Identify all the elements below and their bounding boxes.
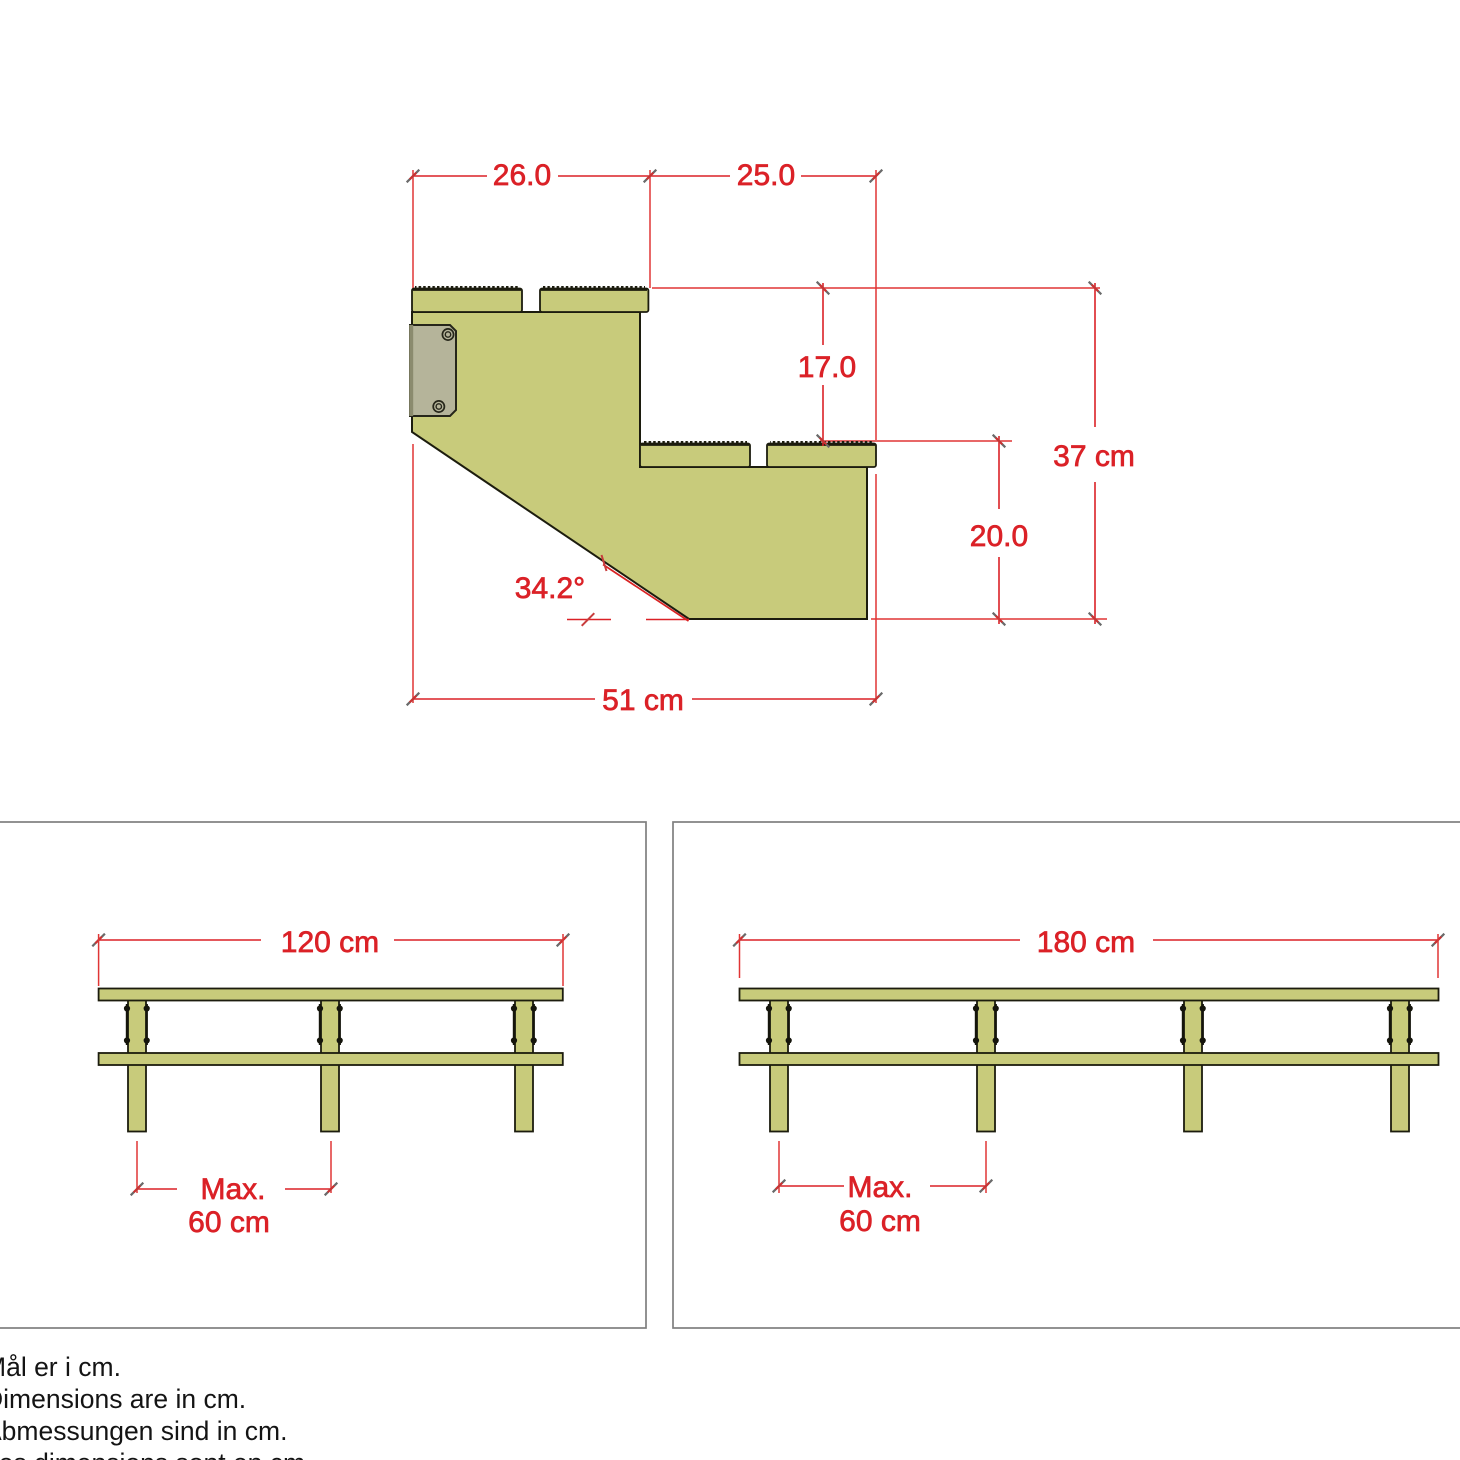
svg-text:120 cm: 120 cm (281, 926, 379, 959)
svg-text:60 cm: 60 cm (188, 1206, 270, 1239)
svg-text:Max.: Max. (847, 1171, 912, 1204)
svg-text:51 cm: 51 cm (602, 684, 684, 717)
svg-text:Les dimensions sont en cm.: Les dimensions sont en cm. (0, 1448, 312, 1460)
svg-text:34.2°: 34.2° (515, 572, 585, 605)
svg-text:25.0: 25.0 (737, 159, 795, 192)
svg-text:Abmessungen sind in cm.: Abmessungen sind in cm. (0, 1416, 287, 1446)
svg-text:180 cm: 180 cm (1037, 926, 1135, 959)
svg-text:20.0: 20.0 (970, 520, 1028, 553)
svg-text:Mål er i cm.: Mål er i cm. (0, 1352, 121, 1382)
svg-text:37 cm: 37 cm (1053, 440, 1135, 473)
svg-text:26.0: 26.0 (493, 159, 551, 192)
svg-text:17.0: 17.0 (798, 351, 856, 384)
svg-text:60 cm: 60 cm (839, 1205, 921, 1238)
svg-text:Dimensions are in cm.: Dimensions are in cm. (0, 1384, 246, 1414)
svg-text:Max.: Max. (200, 1173, 265, 1206)
